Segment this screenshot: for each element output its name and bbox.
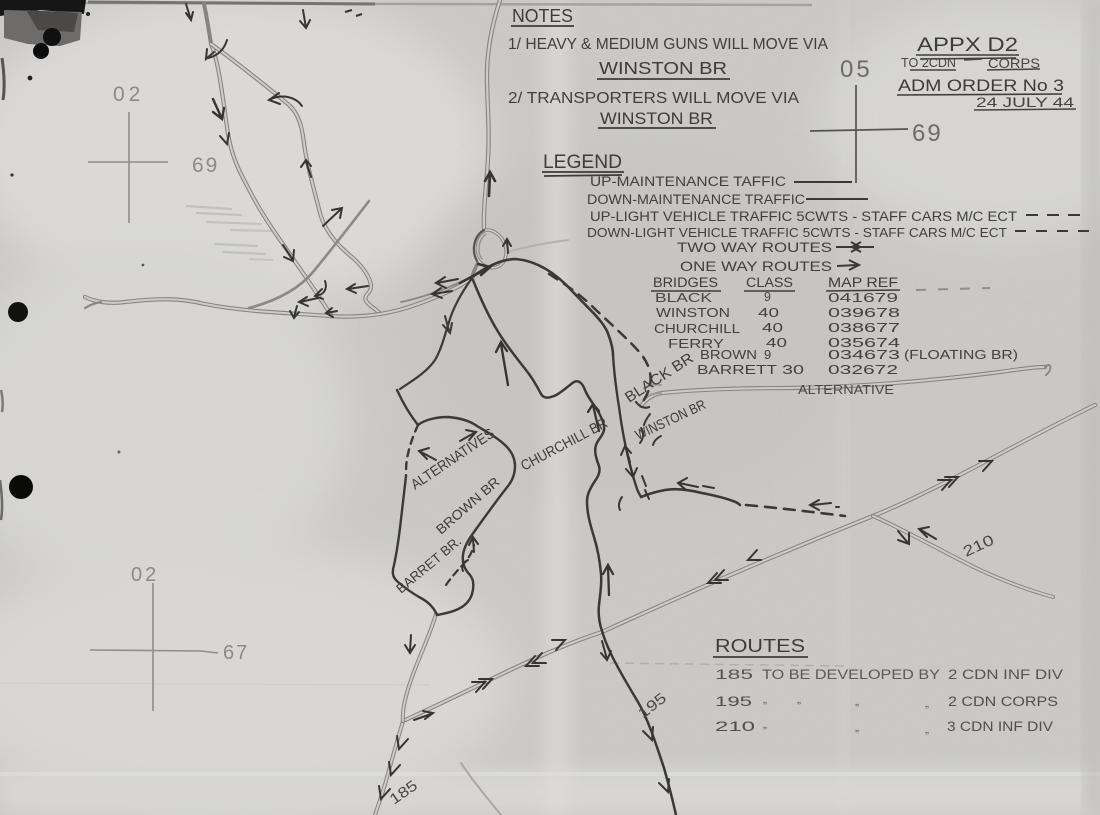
svg-text:3 CDN INF DIV: 3 CDN INF DIV [947,719,1053,734]
svg-text:9: 9 [764,290,771,304]
svg-text:69: 69 [912,120,943,147]
svg-text:DOWN-MAINTENANCE TRAFFIC: DOWN-MAINTENANCE TRAFFIC [587,192,805,207]
svg-text:APPX D2: APPX D2 [917,35,1018,56]
svg-text:210: 210 [715,718,755,734]
svg-text:DOWN-LIGHT VEHICLE TRAFFIC 5C: DOWN-LIGHT VEHICLE TRAFFIC 5CWTS - STAFF… [587,225,1007,240]
svg-text:67: 67 [223,642,249,664]
svg-text:40: 40 [758,305,779,320]
svg-text:2 CDN CORPS: 2 CDN CORPS [948,694,1058,709]
svg-text:„: „ [925,696,929,710]
svg-text:038677: 038677 [828,320,900,335]
svg-text:CHURCHILL: CHURCHILL [654,321,740,336]
svg-text:BROWN: BROWN [700,347,757,362]
svg-text:05: 05 [840,56,873,83]
svg-text:ROUTES: ROUTES [715,636,805,656]
svg-text:034673: 034673 [828,347,900,362]
svg-text:BRIDGES: BRIDGES [653,275,718,290]
svg-text:TWO WAY ROUTES: TWO WAY ROUTES [677,239,832,255]
svg-text:69: 69 [192,154,219,177]
svg-text:ONE WAY ROUTES: ONE WAY ROUTES [680,258,832,274]
svg-text:039678: 039678 [828,305,900,320]
svg-text:ADM ORDER No 3: ADM ORDER No 3 [898,76,1064,95]
svg-text:1/ HEAVY & MEDIUM GUNS WILL MO: 1/ HEAVY & MEDIUM GUNS WILL MOVE VIA [508,36,829,53]
svg-text:TO BE DEVELOPED BY: TO BE DEVELOPED BY [762,667,940,682]
svg-text:032672: 032672 [828,362,898,377]
svg-text:LEGEND: LEGEND [543,152,622,173]
svg-text:185: 185 [715,666,753,682]
svg-text:NOTES: NOTES [512,6,573,26]
svg-text:WINSTON: WINSTON [656,305,730,320]
svg-text:30: 30 [782,362,804,377]
svg-text:UP-MAINTENANCE TAFFIC: UP-MAINTENANCE TAFFIC [590,174,786,189]
svg-text:2 CDN INF DIV: 2 CDN INF DIV [948,667,1063,682]
svg-text:BLACK: BLACK [655,291,713,305]
svg-text:WINSTON BR: WINSTON BR [599,58,727,78]
svg-text:„: „ [855,694,859,708]
svg-text:UP-LIGHT VEHICLE TRAFFIC 5CWT: UP-LIGHT VEHICLE TRAFFIC 5CWTS - STAFF C… [590,209,1017,224]
svg-text:„: „ [763,717,767,731]
svg-text:MAP REF: MAP REF [828,275,898,290]
svg-text:9: 9 [764,347,771,362]
svg-text:2/ TRANSPORTERS WILL MOVE VIA: 2/ TRANSPORTERS WILL MOVE VIA [508,90,800,107]
svg-text:195: 195 [715,693,752,709]
svg-text:CLASS: CLASS [746,275,793,290]
svg-text:02: 02 [113,83,144,106]
svg-text:02: 02 [131,564,159,586]
svg-text:40: 40 [762,320,783,335]
svg-text:ALTERNATIVE: ALTERNATIVE [798,383,894,397]
svg-text:„: „ [797,692,801,706]
svg-text:(FLOATING BR): (FLOATING BR) [904,348,1018,362]
svg-text:„: „ [925,722,929,736]
svg-text:041679: 041679 [828,291,898,305]
svg-text:WINSTON BR: WINSTON BR [600,109,713,128]
svg-text:24 JULY 44: 24 JULY 44 [976,94,1074,110]
svg-text:„: „ [855,720,859,734]
svg-text:BARRETT: BARRETT [697,362,777,377]
svg-text:TO 2CDN: TO 2CDN [901,55,956,70]
svg-text:„: „ [763,692,767,706]
